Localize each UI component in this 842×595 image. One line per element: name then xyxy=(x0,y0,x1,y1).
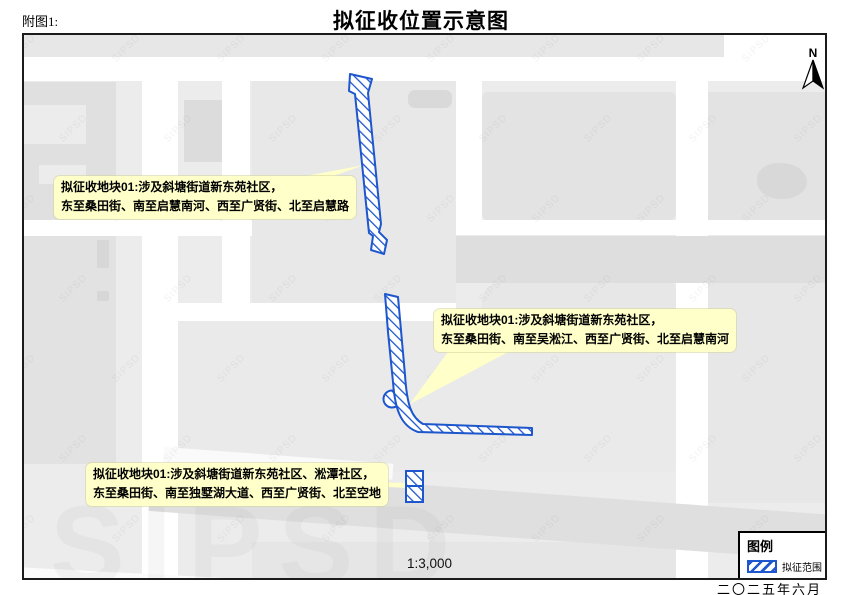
callout-label-north: 拟征收地块01:涉及斜塘街道新东苑社区， 东至桑田街、南至启慧南河、西至广贤街、… xyxy=(54,176,356,219)
north-label: N xyxy=(809,46,818,60)
callout-label-south: 拟征收地块01:涉及斜塘街道新东苑社区、淞潭社区， 东至桑田街、南至独墅湖大道、… xyxy=(86,463,388,506)
callout-text-line: 拟征收地块01:涉及斜塘街道新东苑社区， xyxy=(441,311,729,330)
callout-label-middle: 拟征收地块01:涉及斜塘街道新东苑社区， 东至桑田街、南至吴淞江、西至广贤街、北… xyxy=(434,309,736,352)
legend-box: 图例 拟征范围 xyxy=(738,531,827,580)
parcel-polygon-north xyxy=(349,74,387,254)
document-page: 附图1: 拟征收位置示意图 xyxy=(0,0,842,595)
callout-text-line: 拟征收地块01:涉及斜塘街道新东苑社区、淞潭社区， xyxy=(93,465,381,484)
page-title: 拟征收位置示意图 xyxy=(0,5,842,35)
legend-item: 拟征范围 xyxy=(747,559,822,574)
callout-text-line: 东至桑田街、南至吴淞江、西至广贤街、北至启慧南河 xyxy=(441,330,729,349)
callout-text-line: 拟征收地块01:涉及斜塘街道新东苑社区， xyxy=(61,178,349,197)
callout-leader-2 xyxy=(410,349,514,404)
legend-title: 图例 xyxy=(747,536,822,555)
hatch-swatch-icon xyxy=(747,560,777,573)
map-scale: 1:3,000 xyxy=(407,556,452,571)
callout-text-line: 东至桑田街、南至独墅湖大道、西至广贤街、北至空地 xyxy=(93,484,381,503)
map-canvas: SIPSDSIPSDSIPSDSIPSDSIPSDSIPSDSIPSDSIPSD… xyxy=(22,33,827,580)
document-date: 二〇二五年六月 xyxy=(717,579,822,595)
parcel-polygon-south xyxy=(406,471,423,502)
legend-item-label: 拟征范围 xyxy=(782,559,822,574)
callout-text-line: 东至桑田街、南至启慧南河、西至广贤街、北至启慧路 xyxy=(61,197,349,216)
north-arrow: N xyxy=(803,46,823,88)
